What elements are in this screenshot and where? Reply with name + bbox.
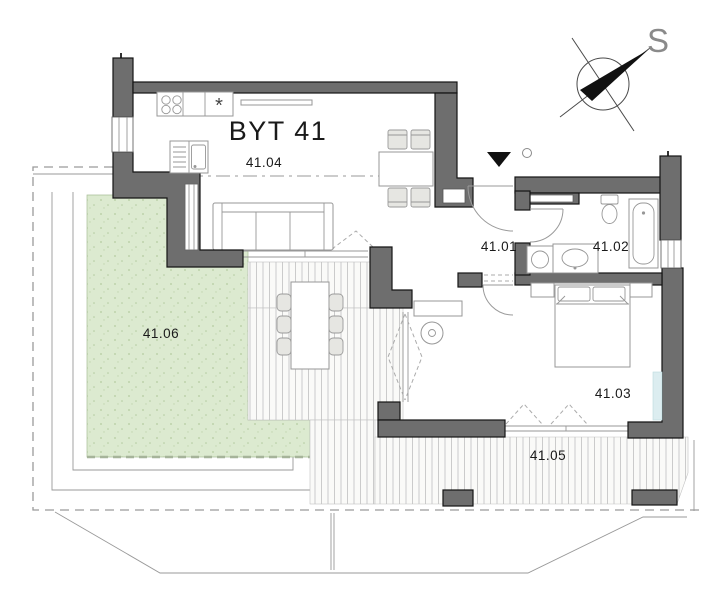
radiator — [653, 372, 662, 420]
terrace-chair — [329, 338, 343, 355]
dining-table — [379, 152, 433, 186]
wall-bedroom-sw-anchor — [378, 402, 400, 420]
desk-chair — [421, 322, 443, 344]
dining-chair — [411, 130, 430, 149]
room-label-41-01: 41.01 — [481, 239, 517, 254]
deck-pillar — [632, 490, 677, 505]
compass-letter: S — [647, 22, 669, 59]
dining-chair — [411, 188, 430, 207]
wall-niche — [443, 189, 465, 203]
plan-title: BYT 41 — [229, 116, 328, 146]
deck-pillar — [443, 490, 473, 506]
wall-bedroom-south — [378, 420, 505, 437]
window-west-living — [185, 184, 198, 250]
terrace-chair — [329, 316, 343, 333]
room-label-41-03: 41.03 — [595, 386, 631, 401]
floor-plan: * — [0, 0, 721, 600]
terrace-chair — [277, 294, 291, 311]
sink-icon: * — [215, 95, 223, 117]
window-west — [112, 117, 133, 152]
terrace-table — [291, 282, 329, 369]
terrace-chair — [329, 294, 343, 311]
sofa-body — [213, 203, 333, 250]
wall-bath-north — [515, 177, 663, 193]
room-label-41-02: 41.02 — [593, 239, 629, 254]
room-label-41-05: 41.05 — [530, 448, 566, 463]
wall-bath-west-upper — [515, 191, 530, 210]
bed — [555, 285, 630, 367]
wall-hall-south — [458, 273, 482, 287]
desk — [414, 301, 462, 316]
washbasin-icon — [553, 244, 598, 273]
dining-chair — [388, 188, 407, 207]
kitchen-shelf — [241, 100, 312, 105]
bathtub-icon — [629, 199, 658, 268]
window-bath-east — [661, 240, 681, 268]
sofa — [213, 203, 333, 250]
washing-machine-icon — [527, 246, 553, 273]
room-label-41-04: 41.04 — [246, 155, 282, 170]
dining-chair — [388, 130, 407, 149]
wall-north — [133, 82, 457, 93]
sink-tap — [194, 165, 197, 168]
terrace-chair — [277, 338, 291, 355]
wall-east-pillar — [660, 156, 681, 240]
wall-west-pillar — [113, 58, 133, 117]
deck-area — [310, 420, 375, 504]
room-label-41-06: 41.06 — [143, 326, 179, 341]
terrace-chair — [277, 316, 291, 333]
